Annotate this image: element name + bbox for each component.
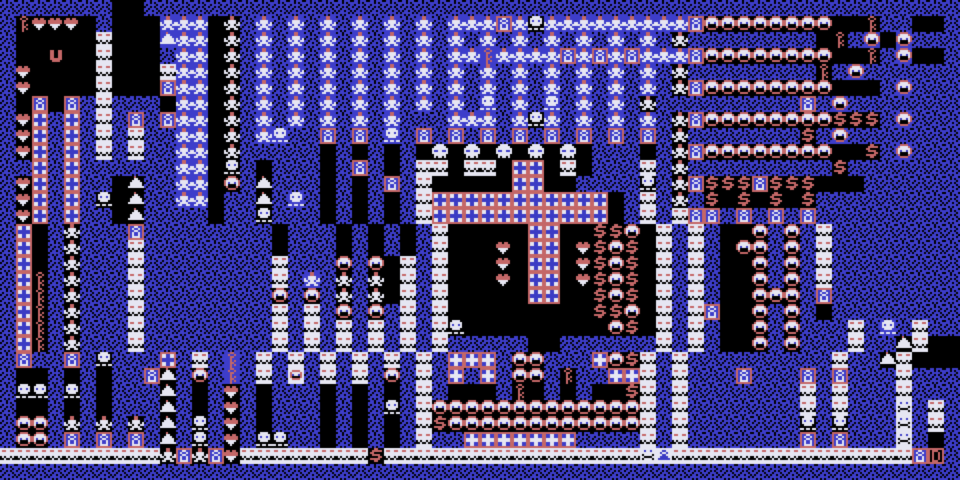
game-screen <box>0 0 960 480</box>
tile-map-canvas[interactable] <box>0 0 960 480</box>
